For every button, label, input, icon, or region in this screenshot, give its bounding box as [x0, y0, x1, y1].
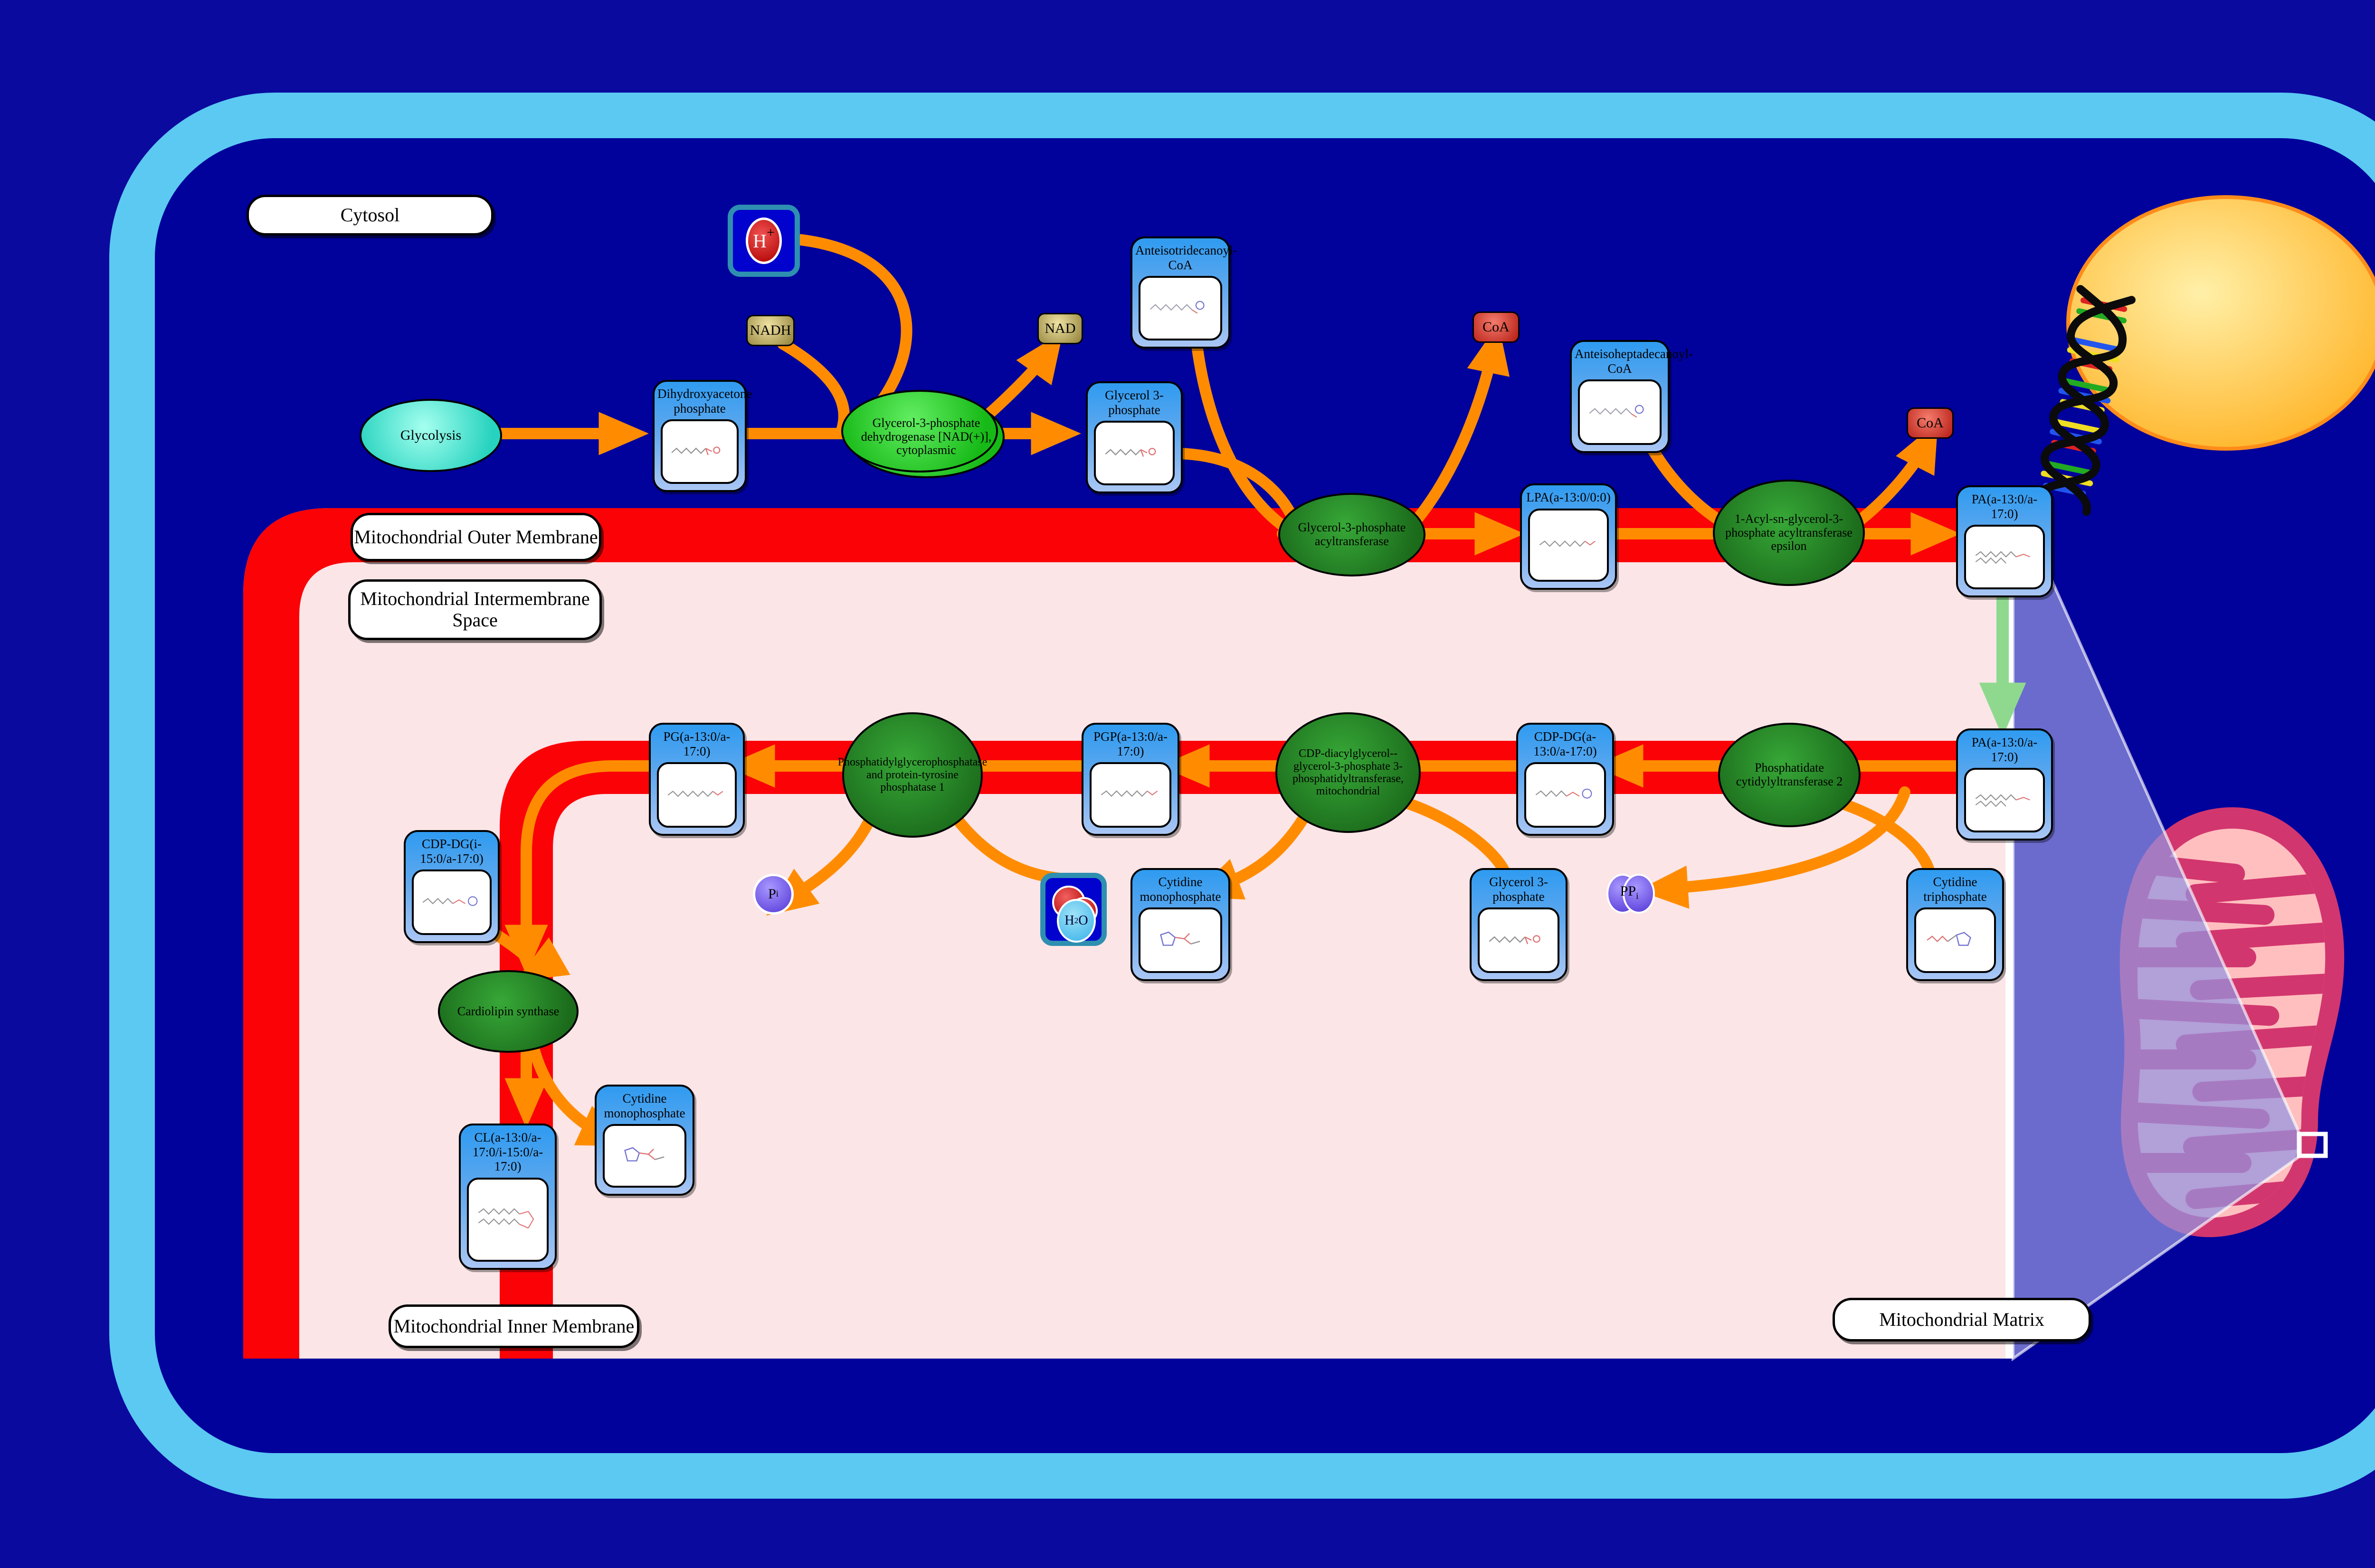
- node-lpa[interactable]: LPA(a-13:0/0:0): [1520, 483, 1617, 590]
- cofactor-coa-2[interactable]: CoA: [1907, 407, 1954, 439]
- cofactor-nadh[interactable]: NADH: [746, 315, 795, 346]
- cofactor-ppi[interactable]: PPi: [1606, 874, 1652, 911]
- label-cytosol: Cytosol: [247, 195, 494, 236]
- node-ctp[interactable]: Cytidine triphosphate: [1906, 868, 2004, 981]
- cofactor-h2o-icon[interactable]: H2O: [1040, 873, 1107, 946]
- node-cmp-mid[interactable]: Cytidine monophosphate: [1130, 868, 1230, 981]
- node-cmp-low[interactable]: Cytidine monophosphate: [595, 1085, 694, 1196]
- node-cdp-dg-i[interactable]: CDP-DG(i-15:0/a-17:0): [404, 830, 500, 943]
- node-pa-lower[interactable]: PA(a-13:0/a-17:0): [1956, 728, 2053, 841]
- structure-pg: [657, 762, 737, 828]
- structure-cl: [467, 1178, 549, 1262]
- cofactor-h-plus-icon[interactable]: H+: [728, 205, 800, 277]
- node-anteisotridecanoyl-coa[interactable]: Anteisotridecanoyl-CoA: [1130, 236, 1230, 349]
- node-dhap[interactable]: Dihydroxyacetone phosphate: [653, 380, 747, 492]
- h2o-symbol: H2O: [1057, 899, 1096, 943]
- process-glycolysis[interactable]: Glycolysis: [360, 399, 502, 472]
- structure-cdp-dg-i: [412, 869, 492, 935]
- h-plus-symbol: H+: [746, 217, 782, 264]
- node-pg[interactable]: PG(a-13:0/a-17:0): [649, 723, 745, 836]
- node-g3p-cytosol[interactable]: Glycerol 3-phosphate: [1086, 381, 1183, 493]
- cofactor-pi[interactable]: Pi: [753, 874, 794, 915]
- structure-cdp-dg-a: [1524, 762, 1606, 828]
- enzyme-pgs1[interactable]: CDP-diacylglycerol--glycerol-3-phosphate…: [1275, 712, 1421, 833]
- enzyme-cds2[interactable]: Phosphatidate cytidylyltransferase 2: [1718, 723, 1861, 827]
- structure-cmp-low: [603, 1124, 686, 1188]
- label-inner-membrane: Mitochondrial Inner Membrane: [389, 1304, 639, 1348]
- structure-dhap: [661, 419, 739, 484]
- label-matrix: Mitochondrial Matrix: [1833, 1298, 2091, 1341]
- structure-lpa: [1528, 509, 1609, 582]
- structure-cmp-mid: [1139, 907, 1222, 973]
- node-pgp[interactable]: PGP(a-13:0/a-17:0): [1082, 723, 1179, 836]
- structure-g3p-matrix: [1478, 907, 1559, 973]
- structure-pa-upper: [1964, 525, 2045, 589]
- enzyme-agpat-epsilon[interactable]: 1-Acyl-sn-glycerol-3-phosphate acyltrans…: [1713, 480, 1865, 586]
- structure-anteisotridecanoyl-coa: [1139, 276, 1222, 340]
- cofactor-coa-1[interactable]: CoA: [1472, 312, 1520, 343]
- node-pa-upper[interactable]: PA(a-13:0/a-17:0): [1956, 485, 2053, 597]
- node-anteisoheptadecanoyl-coa[interactable]: Anteisoheptadecanoyl-CoA: [1570, 340, 1670, 453]
- structure-anteisoheptadecanoyl-coa: [1578, 379, 1662, 445]
- cofactor-nad[interactable]: NAD: [1037, 313, 1083, 344]
- enzyme-gpd1[interactable]: Glycerol-3-phosphate dehydrogenase [NAD(…: [848, 396, 1005, 478]
- structure-ctp: [1914, 907, 1996, 973]
- structure-pa-lower: [1964, 768, 2045, 832]
- structure-pgp: [1090, 762, 1171, 828]
- structure-g3p-cytosol: [1094, 421, 1175, 485]
- label-outer-membrane: Mitochondrial Outer Membrane: [351, 513, 601, 561]
- pathway-diagram: Cytosol Mitochondrial Outer Membrane Mit…: [0, 0, 2375, 1568]
- enzyme-crls1[interactable]: Cardiolipin synthase: [438, 970, 579, 1053]
- node-g3p-matrix[interactable]: Glycerol 3-phosphate: [1470, 868, 1567, 981]
- label-intermembrane-space: Mitochondrial Intermembrane Space: [348, 579, 602, 640]
- enzyme-gpat[interactable]: Glycerol-3-phosphate acyltransferase: [1278, 493, 1425, 576]
- node-cdp-dg-a[interactable]: CDP-DG(a-13:0/a-17:0): [1516, 723, 1614, 836]
- enzyme-ptpmt1[interactable]: Phosphatidylglycerophosphatase and prote…: [842, 712, 983, 838]
- node-cl[interactable]: CL(a-13:0/a-17:0/i-15:0/a-17:0): [459, 1124, 557, 1270]
